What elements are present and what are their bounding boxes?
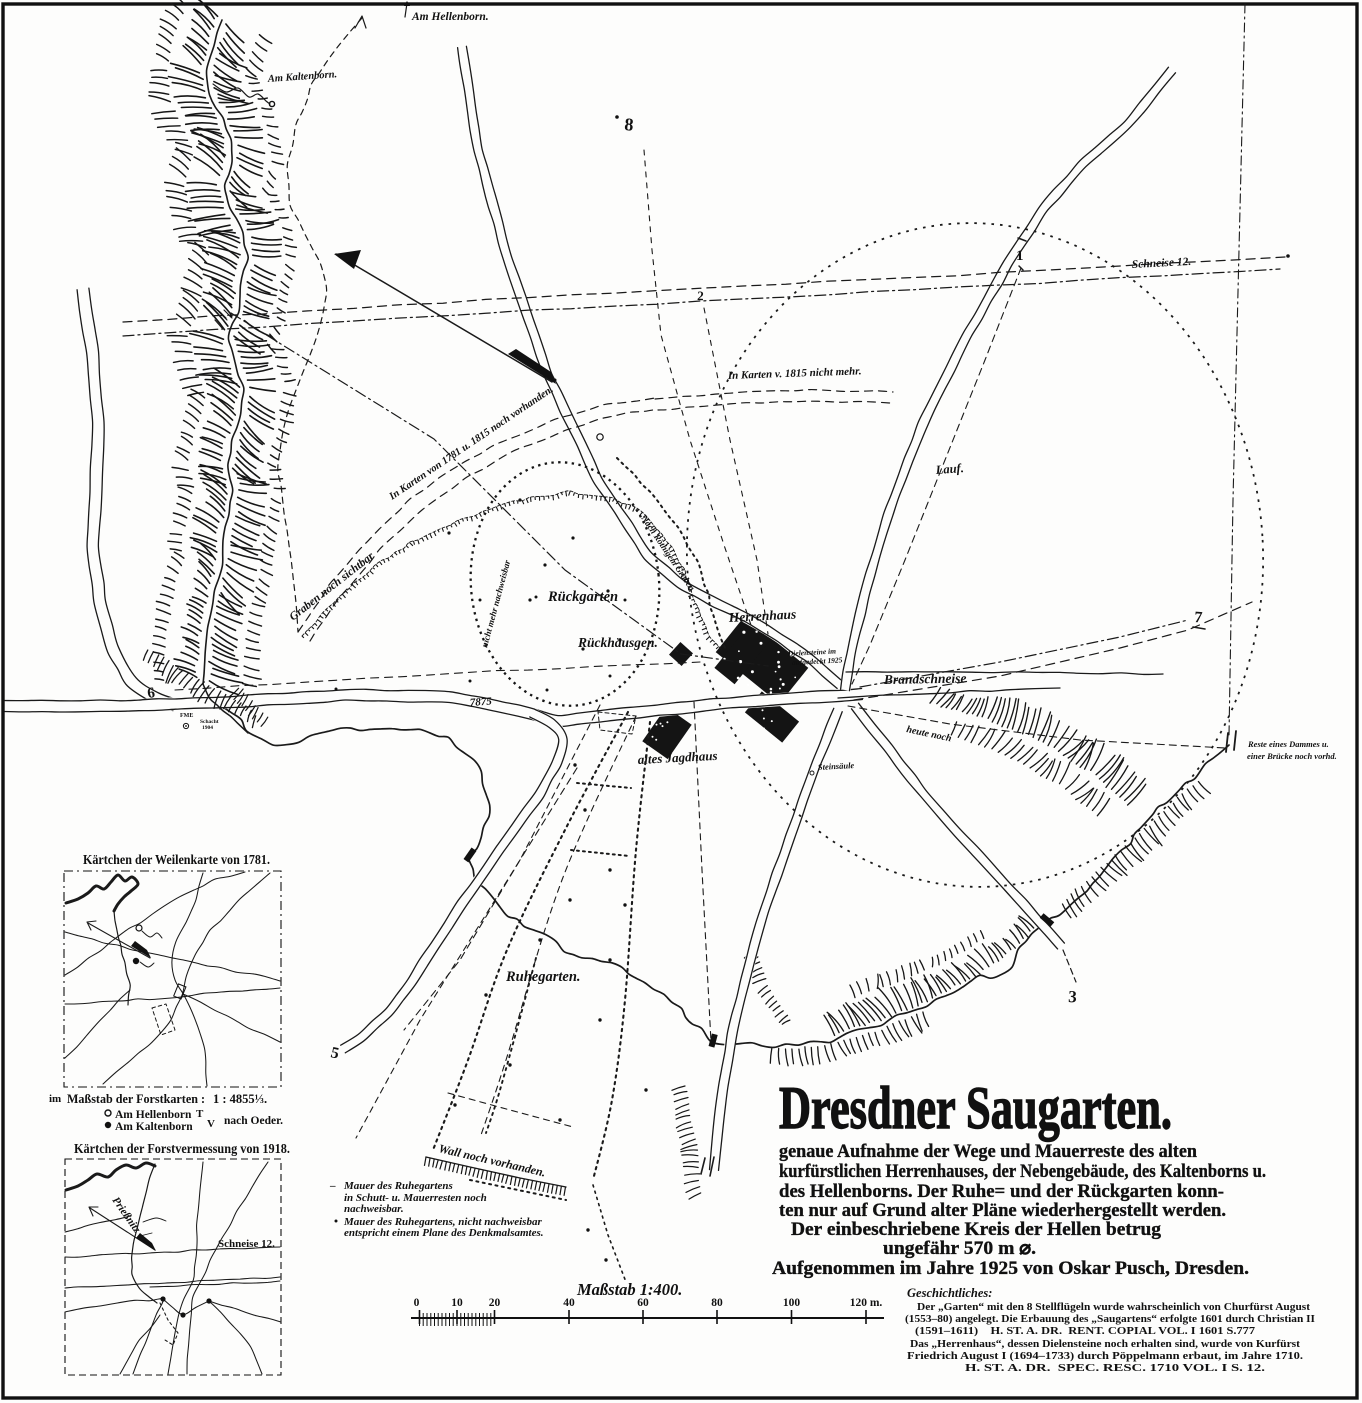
- svg-text:Maßstab 1:400.: Maßstab 1:400.: [576, 1280, 682, 1299]
- svg-text:FME: FME: [180, 713, 193, 719]
- svg-text:(1553–80) angelegt. Die Erbauu: (1553–80) angelegt. Die Erbauung des „Sa…: [905, 1313, 1315, 1325]
- svg-text:1: 1: [1016, 248, 1024, 264]
- svg-text:1 : 4855⅓.: 1 : 4855⅓.: [213, 1092, 267, 1106]
- svg-text:Lauf.: Lauf.: [934, 461, 964, 477]
- svg-text:20: 20: [489, 1297, 501, 1309]
- svg-text:0: 0: [414, 1297, 420, 1309]
- svg-text:8: 8: [624, 114, 635, 135]
- svg-text:einer Brücke noch vorhd.: einer Brücke noch vorhd.: [1247, 751, 1337, 761]
- svg-text:–: –: [329, 1180, 336, 1192]
- svg-text:entspricht einem Plane des Den: entspricht einem Plane des Denkmalsamtes…: [344, 1227, 544, 1239]
- svg-text:Das „Herrenhaus“, dessen Diele: Das „Herrenhaus“, dessen Dielensteine no…: [910, 1338, 1300, 1350]
- svg-text:des Hellenborns. Der Ruhe= und: des Hellenborns. Der Ruhe= und der Rückg…: [779, 1181, 1224, 1202]
- svg-text:Maßstab der Forstkarten :: Maßstab der Forstkarten :: [67, 1091, 205, 1106]
- svg-text:Kärtchen der Forstvermessung v: Kärtchen der Forstvermessung von 1918.: [74, 1141, 290, 1156]
- svg-text:7875: 7875: [469, 695, 492, 709]
- svg-text:100: 100: [783, 1297, 801, 1309]
- svg-text:Der einbeschriebene Kreis der: Der einbeschriebene Kreis der Hellen bet…: [791, 1219, 1162, 1240]
- svg-text:7: 7: [1194, 609, 1203, 627]
- svg-text:Am Kaltenborn: Am Kaltenborn: [115, 1121, 193, 1133]
- svg-text:3: 3: [1068, 987, 1077, 1006]
- svg-text:Der „Garten“ mit den 8 Stellfl: Der „Garten“ mit den 8 Stellflügeln wurd…: [917, 1301, 1310, 1313]
- svg-text:2: 2: [697, 288, 704, 303]
- svg-text:Am Hellenborn.: Am Hellenborn.: [411, 11, 489, 23]
- svg-text:nachweisbar.: nachweisbar.: [344, 1203, 404, 1215]
- svg-text:Rückhäusgen.: Rückhäusgen.: [577, 635, 658, 650]
- svg-text:1904: 1904: [202, 725, 213, 731]
- svg-text:120 m.: 120 m.: [850, 1297, 883, 1309]
- svg-text:Steinsäule: Steinsäule: [818, 760, 855, 772]
- svg-text:40: 40: [563, 1297, 575, 1309]
- svg-text:kurfürstlichen Herrenhauses, d: kurfürstlichen Herrenhauses, der Nebenge…: [779, 1161, 1266, 1182]
- svg-text:genaue Aufnahme der Wege und M: genaue Aufnahme der Wege und Mauerreste …: [779, 1141, 1197, 1162]
- svg-text:Mauer des Ruhegartens: Mauer des Ruhegartens: [343, 1180, 453, 1192]
- svg-text:ten nur auf Grund alter Pläne: ten nur auf Grund alter Pläne wiederherg…: [779, 1200, 1226, 1221]
- svg-text:H. ST. A. DR. SPEC. RESC. 171: H. ST. A. DR. SPEC. RESC. 1710 VOL. I S.…: [965, 1362, 1265, 1374]
- svg-text:V: V: [207, 1118, 215, 1130]
- svg-text:(1591–1611) H. ST. A. DR.: (1591–1611) H. ST. A. DR. RENT. COPIAL V…: [915, 1325, 1256, 1337]
- svg-text:Aufgenommen im Jahre 1925 von: Aufgenommen im Jahre 1925 von Oskar Pusc…: [772, 1258, 1249, 1279]
- svg-text:Am Hellenborn: Am Hellenborn: [115, 1109, 192, 1121]
- svg-text:Brandschneise: Brandschneise: [883, 671, 967, 687]
- svg-text:T: T: [196, 1108, 204, 1120]
- svg-text:80: 80: [711, 1297, 723, 1309]
- svg-text:10: 10: [451, 1297, 463, 1309]
- svg-text:ungefähr 570 m ⌀.: ungefähr 570 m ⌀.: [883, 1238, 1036, 1259]
- svg-text:Friedrich August I (1694–1733): Friedrich August I (1694–1733) durch Pöp…: [907, 1350, 1303, 1362]
- svg-text:Ruhegarten.: Ruhegarten.: [505, 969, 581, 985]
- svg-text:nach Oeder.: nach Oeder.: [224, 1115, 283, 1127]
- svg-text:im: im: [49, 1093, 61, 1105]
- svg-text:Dresdner Saugarten.: Dresdner Saugarten.: [779, 1075, 1172, 1141]
- svg-text:Reste eines Dammes u.: Reste eines Dammes u.: [1247, 739, 1329, 749]
- svg-text:Kärtchen der Weilenkarte von 1: Kärtchen der Weilenkarte von 1781.: [83, 852, 270, 867]
- svg-text:Geschichtliches:: Geschichtliches:: [907, 1286, 992, 1300]
